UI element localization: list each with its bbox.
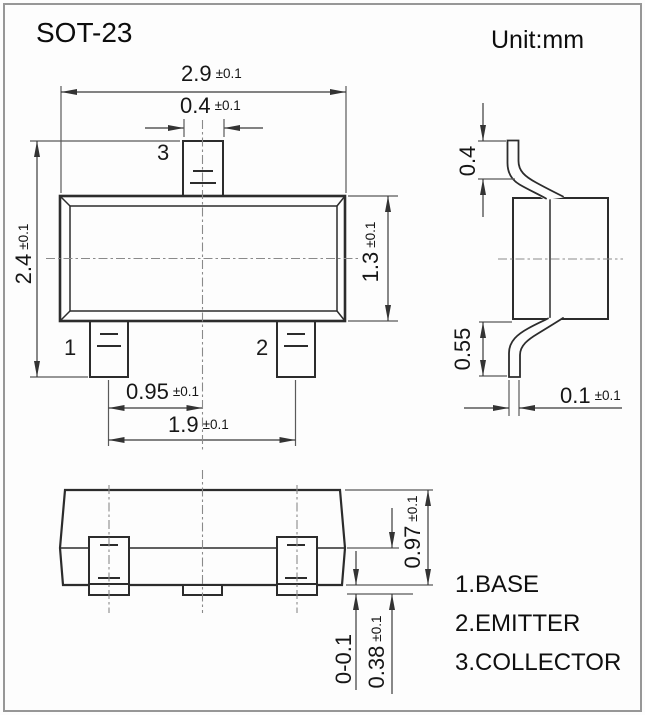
page-border [3, 3, 642, 712]
drawing-page: SOT-23 Unit:mm 2.9 ±0.1 0.4 ±0.1 2.4 ±0.… [0, 0, 645, 715]
